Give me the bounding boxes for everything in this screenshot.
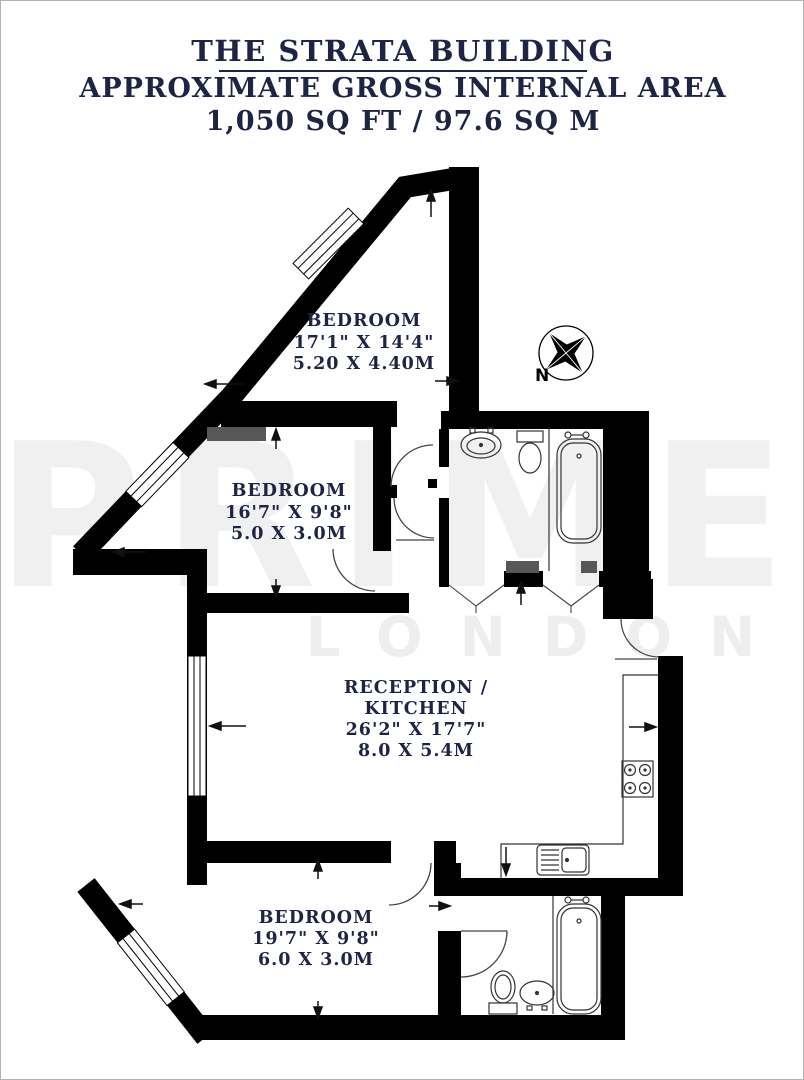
compass-north-label: N [535,366,549,386]
svg-text:KITCHEN: KITCHEN [364,699,467,719]
svg-text:RECEPTION /: RECEPTION / [344,678,488,698]
floorplan-page: PRIME LONDON THE STRATA BUILDING APPROXI… [0,0,804,1080]
room-label-bedroom-middle: BEDROOM 16'7" X 9'8" 5.0 X 3.0M [225,481,353,544]
svg-text:17'1" X 14'4": 17'1" X 14'4" [294,333,435,353]
watermark: PRIME LONDON [1,401,804,669]
svg-text:BEDROOM: BEDROOM [307,311,422,331]
room-label-reception: RECEPTION / KITCHEN 26'2" X 17'7" 8.0 X … [344,678,488,761]
subtitle-area: APPROXIMATE GROSS INTERNAL AREA [78,73,726,104]
svg-text:6.0 X 3.0M: 6.0 X 3.0M [258,950,374,970]
svg-text:BEDROOM: BEDROOM [259,908,374,928]
svg-text:8.0 X 5.4M: 8.0 X 5.4M [358,741,474,761]
svg-text:26'2" X 17'7": 26'2" X 17'7" [346,720,487,740]
svg-text:5.20 X 4.40M: 5.20 X 4.40M [293,354,435,374]
window-reception-left [188,656,206,796]
watermark-secondary: LONDON [306,605,792,669]
subtitle-size: 1,050 SQ FT / 97.6 SQ M [206,106,601,137]
svg-text:16'7" X 9'8": 16'7" X 9'8" [225,503,353,523]
svg-text:19'7" X 9'8": 19'7" X 9'8" [252,929,380,949]
svg-text:5.0 X 3.0M: 5.0 X 3.0M [231,524,347,544]
svg-text:BEDROOM: BEDROOM [232,481,347,501]
page-title: THE STRATA BUILDING [191,34,615,68]
room-label-bedroom-bottom: BEDROOM 19'7" X 9'8" 6.0 X 3.0M [252,908,380,970]
room-label-bedroom-top: BEDROOM 17'1" X 14'4" 5.20 X 4.40M [293,311,435,374]
